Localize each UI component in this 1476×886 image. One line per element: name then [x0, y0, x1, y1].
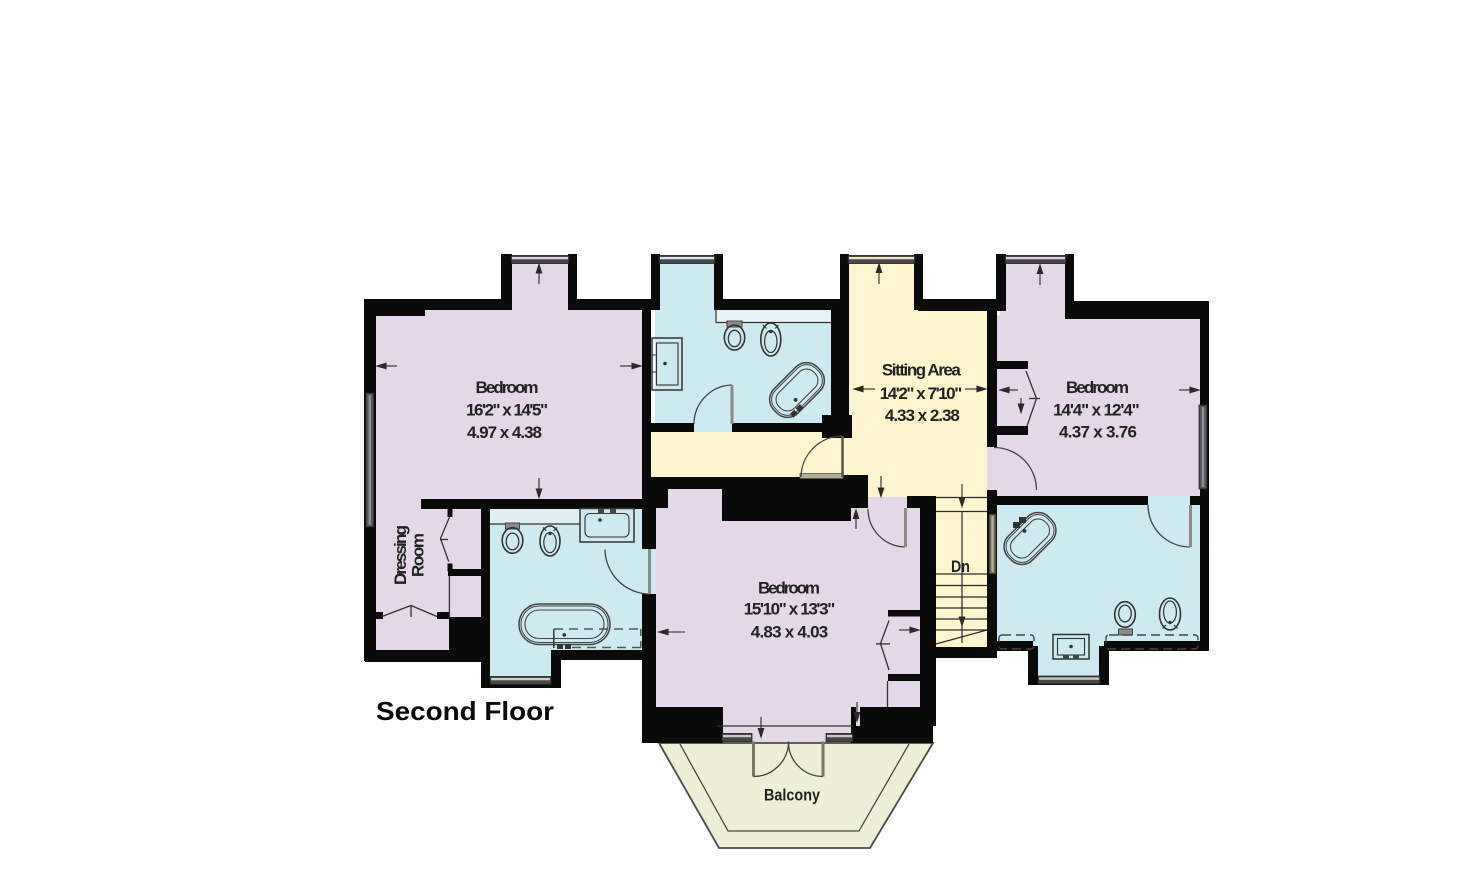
svg-text:14'4" x 12'4": 14'4" x 12'4"	[1053, 401, 1140, 420]
svg-text:4.37 x 3.76: 4.37 x 3.76	[1059, 422, 1137, 441]
svg-text:4.33 x 2.38: 4.33 x 2.38	[885, 406, 960, 425]
svg-text:Dn: Dn	[951, 557, 970, 576]
svg-text:4.83 x 4.03: 4.83 x 4.03	[751, 622, 829, 641]
svg-text:Room: Room	[409, 533, 428, 577]
svg-text:Bedroom: Bedroom	[476, 378, 539, 397]
svg-text:14'2" x 7'10": 14'2" x 7'10"	[880, 384, 963, 403]
svg-text:Dressing: Dressing	[391, 525, 410, 585]
svg-text:Bedroom: Bedroom	[1066, 378, 1129, 397]
svg-text:Bedroom: Bedroom	[758, 579, 820, 598]
svg-text:Balcony: Balcony	[764, 786, 820, 805]
svg-text:Second Floor: Second Floor	[376, 696, 554, 726]
svg-text:16'2" x 14'5": 16'2" x 14'5"	[466, 401, 548, 420]
svg-text:15'10" x 13'3": 15'10" x 13'3"	[744, 600, 836, 619]
svg-text:4.97 x 4.38: 4.97 x 4.38	[467, 423, 542, 442]
svg-text:Sitting Area: Sitting Area	[882, 361, 962, 380]
